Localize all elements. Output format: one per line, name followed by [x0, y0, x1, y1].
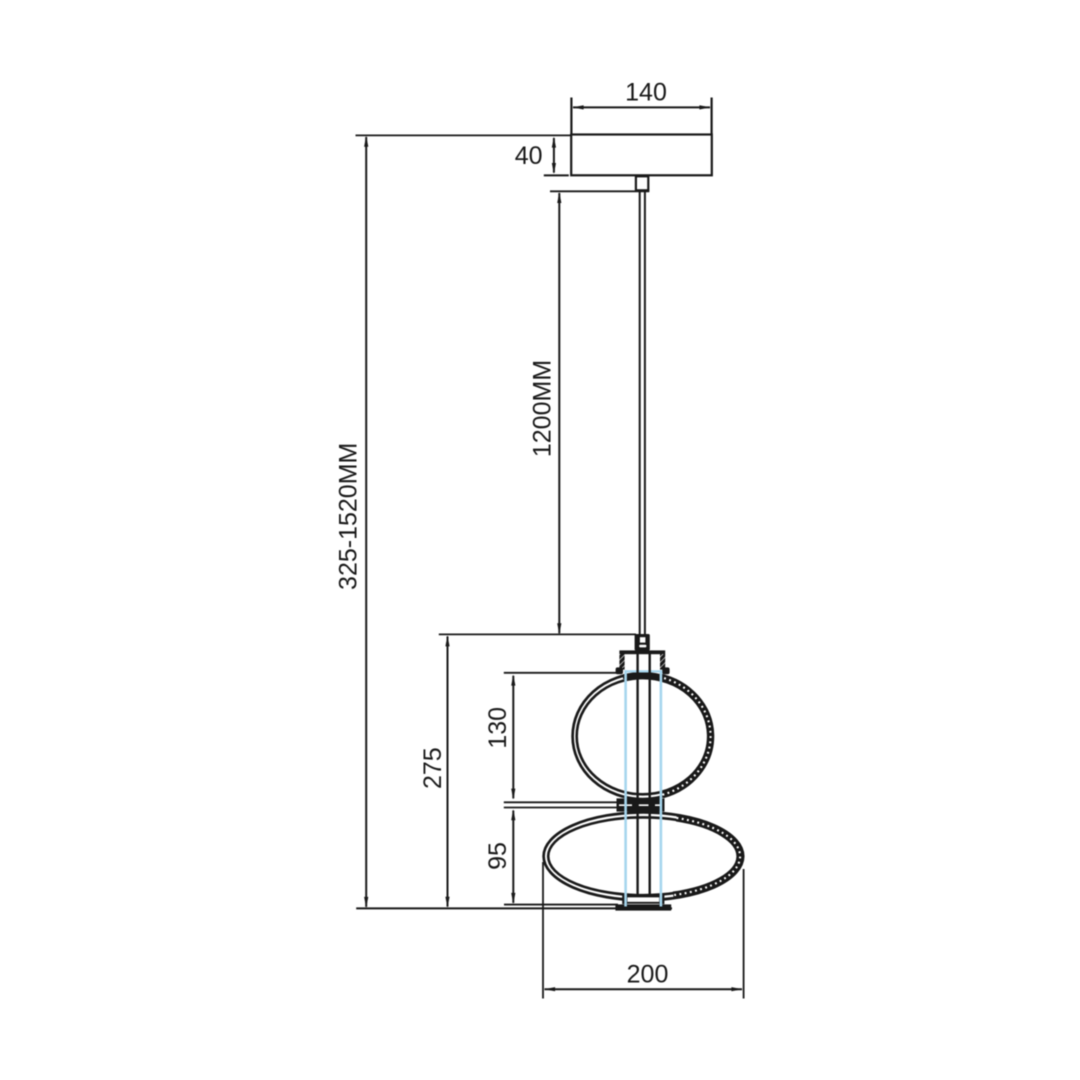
svg-text:275: 275 [419, 747, 447, 789]
svg-text:40: 40 [515, 142, 543, 170]
svg-text:200: 200 [627, 961, 669, 989]
svg-text:325-1520MM: 325-1520MM [335, 443, 363, 590]
svg-text:1200MM: 1200MM [529, 360, 557, 457]
svg-text:130: 130 [484, 707, 512, 749]
svg-text:95: 95 [484, 842, 512, 870]
svg-text:140: 140 [625, 79, 667, 107]
